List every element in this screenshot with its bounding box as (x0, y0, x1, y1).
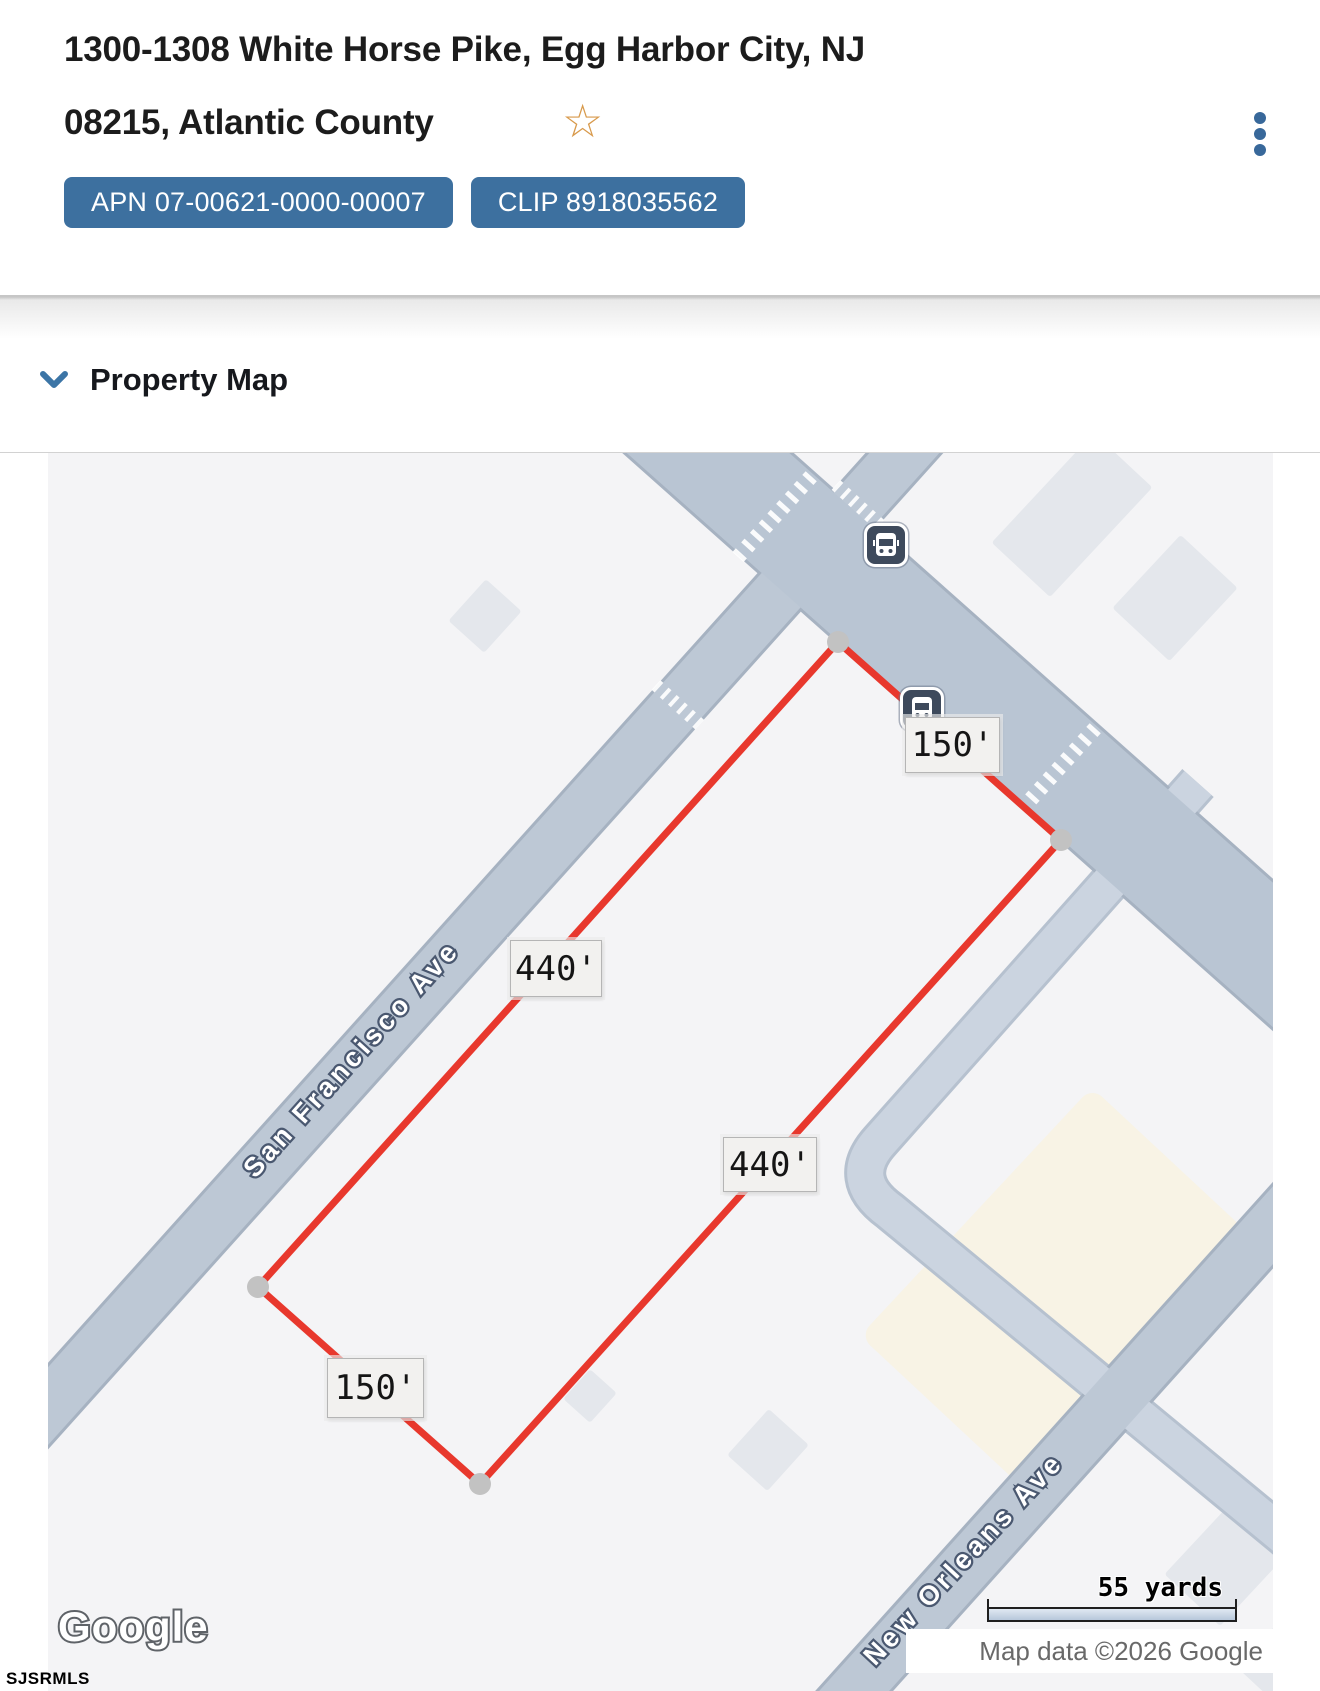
bus-glyph-icon (873, 531, 899, 559)
parcel-outline-layer (48, 453, 1273, 1691)
kebab-dot-icon (1254, 112, 1266, 124)
scale-bar (987, 1607, 1237, 1622)
map-attribution: Map data ©2026 Google (906, 1629, 1273, 1673)
parcel-dimension-label-se: 440' (723, 1137, 817, 1192)
apn-badge: APN 07-00621-0000-00007 (64, 177, 453, 228)
kebab-dot-icon (1254, 128, 1266, 140)
clip-badge: CLIP 8918035562 (471, 177, 745, 228)
google-logo-text: Google (58, 1603, 209, 1650)
mls-watermark: SJSRMLS (6, 1669, 90, 1689)
kebab-dot-icon (1254, 144, 1266, 156)
section-title: Property Map (90, 362, 288, 398)
page-title-line1: 1300-1308 White Horse Pike, Egg Harbor C… (64, 30, 1024, 70)
scale-label: 55 yards (987, 1573, 1237, 1603)
bus-stop-icon (864, 523, 908, 567)
clip-badge-label: CLIP 8918035562 (498, 187, 718, 218)
apn-badge-label: APN 07-00621-0000-00007 (91, 187, 426, 218)
property-detail-page: { "header": { "title_line1": "1300-1308 … (0, 0, 1320, 1691)
parcel-dimension-label-sw: 150' (327, 1358, 424, 1418)
section-divider (0, 295, 1320, 339)
map-scale-control: 55 yards (987, 1573, 1237, 1622)
property-map-canvas[interactable]: San Francisco Ave New Orleans Ave (48, 453, 1273, 1691)
google-logo[interactable]: Google (50, 1591, 270, 1661)
property-map-section-header[interactable]: Property Map (40, 362, 288, 398)
parcel-dimension-label-ne: 150' (905, 717, 1000, 773)
favorite-star-icon[interactable]: ☆ (562, 98, 603, 144)
chevron-down-icon[interactable] (40, 370, 68, 390)
page-title-line2: 08215, Atlantic County (64, 103, 1024, 143)
more-options-menu[interactable] (1251, 112, 1269, 160)
parcel-id-badges: APN 07-00621-0000-00007 CLIP 8918035562 (64, 177, 745, 228)
parcel-dimension-label-nw: 440' (510, 940, 602, 997)
